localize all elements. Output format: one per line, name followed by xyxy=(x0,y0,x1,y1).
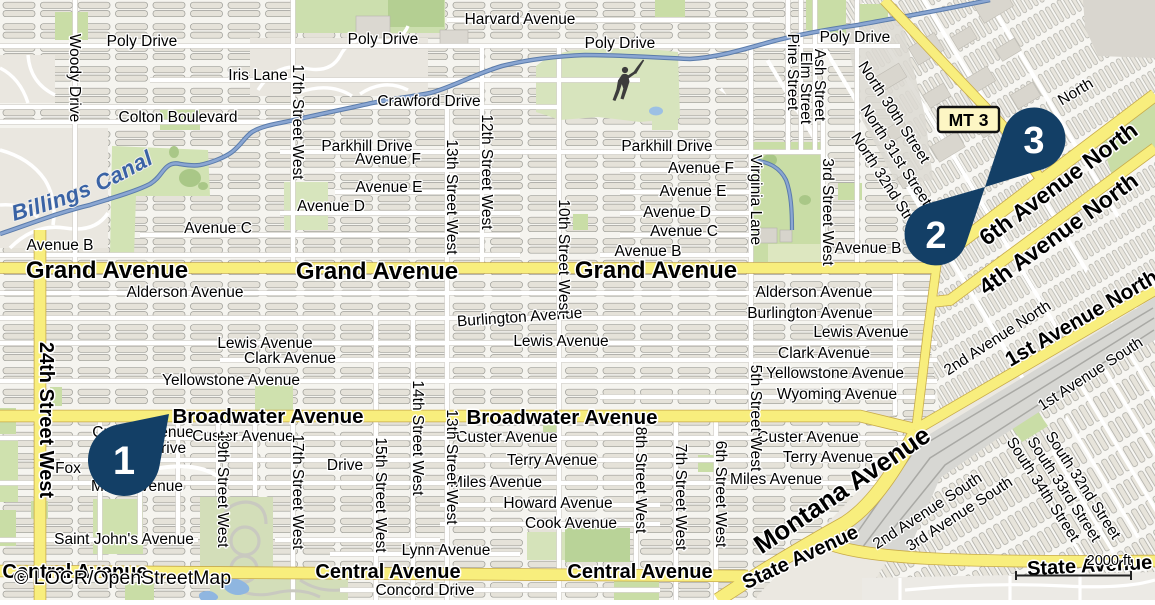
svg-text:5th Street West: 5th Street West xyxy=(747,365,764,472)
svg-text:Avenue B: Avenue B xyxy=(27,237,94,254)
svg-text:Avenue D: Avenue D xyxy=(643,204,711,221)
svg-text:Woody Drive: Woody Drive xyxy=(66,34,83,122)
svg-text:Alderson Avenue: Alderson Avenue xyxy=(127,284,244,301)
svg-text:Saint John's Avenue: Saint John's Avenue xyxy=(54,531,194,548)
svg-text:Yellowstone Avenue: Yellowstone Avenue xyxy=(162,372,300,389)
svg-text:Avenue F: Avenue F xyxy=(668,160,734,177)
svg-text:Avenue C: Avenue C xyxy=(650,223,718,240)
svg-text:10th Street West: 10th Street West xyxy=(555,199,572,315)
svg-text:Custer Avenue: Custer Avenue xyxy=(456,429,557,446)
svg-text:Central Avenue: Central Avenue xyxy=(567,561,712,583)
svg-text:24th Street West: 24th Street West xyxy=(35,342,57,499)
svg-text:Grand Avenue: Grand Avenue xyxy=(296,258,458,285)
svg-text:Clark Avenue: Clark Avenue xyxy=(778,345,870,362)
svg-text:© LOCR/OpenStreetMap: © LOCR/OpenStreetMap xyxy=(14,567,231,589)
svg-text:Parkhill Drive: Parkhill Drive xyxy=(621,138,712,155)
svg-text:Custer Avenue: Custer Avenue xyxy=(192,428,293,445)
svg-text:17th Street West: 17th Street West xyxy=(289,64,306,180)
svg-text:Wyoming Avenue: Wyoming Avenue xyxy=(777,386,897,403)
svg-text:Iris Lane: Iris Lane xyxy=(228,67,287,84)
svg-text:Virginia Lane: Virginia Lane xyxy=(747,155,764,245)
svg-text:Howard Avenue: Howard Avenue xyxy=(503,495,612,512)
svg-text:12th Street West: 12th Street West xyxy=(478,114,495,230)
svg-text:17th Street West: 17th Street West xyxy=(289,434,306,550)
svg-text:13th Street West: 13th Street West xyxy=(443,139,460,255)
svg-text:Miles Avenue: Miles Avenue xyxy=(730,471,822,488)
svg-text:2: 2 xyxy=(925,215,946,257)
svg-text:Burlington Avenue: Burlington Avenue xyxy=(747,305,873,322)
svg-text:Avenue B: Avenue B xyxy=(835,240,902,257)
svg-text:Drive: Drive xyxy=(327,457,363,474)
svg-text:Avenue E: Avenue E xyxy=(356,179,423,196)
svg-text:Avenue D: Avenue D xyxy=(297,198,365,215)
svg-text:Broadwater Avenue: Broadwater Avenue xyxy=(466,406,657,429)
svg-text:Poly Drive: Poly Drive xyxy=(348,31,419,48)
svg-text:Lewis Avenue: Lewis Avenue xyxy=(813,324,908,341)
svg-text:3: 3 xyxy=(1023,120,1044,162)
svg-text:Cook Avenue: Cook Avenue xyxy=(525,515,617,532)
svg-text:Lewis Avenue: Lewis Avenue xyxy=(513,333,608,350)
svg-text:6th Street West: 6th Street West xyxy=(712,441,729,548)
svg-text:Avenue C: Avenue C xyxy=(184,220,252,237)
svg-text:Colton Boulevard: Colton Boulevard xyxy=(119,109,238,126)
svg-text:Poly Drive: Poly Drive xyxy=(820,29,891,46)
svg-text:Avenue E: Avenue E xyxy=(660,183,727,200)
svg-text:19th Street West: 19th Street West xyxy=(214,432,231,548)
svg-text:Lynn Avenue: Lynn Avenue xyxy=(402,542,491,559)
svg-text:13th Street West: 13th Street West xyxy=(443,409,460,525)
svg-text:1: 1 xyxy=(113,439,135,483)
svg-text:Yellowstone Avenue: Yellowstone Avenue xyxy=(766,365,904,382)
svg-text:Terry Avenue: Terry Avenue xyxy=(507,452,597,469)
svg-text:Custer Avenue: Custer Avenue xyxy=(757,429,858,446)
svg-text:Clark Avenue: Clark Avenue xyxy=(244,350,336,367)
svg-text:Grand Avenue: Grand Avenue xyxy=(575,257,737,284)
svg-text:Miles Avenue: Miles Avenue xyxy=(450,474,542,491)
svg-text:Crawford Drive: Crawford Drive xyxy=(377,93,480,110)
svg-text:Concord Drive: Concord Drive xyxy=(375,582,474,599)
svg-text:Alderson Avenue: Alderson Avenue xyxy=(756,284,873,301)
svg-text:2000 ft: 2000 ft xyxy=(1087,553,1131,569)
svg-text:Fox: Fox xyxy=(55,460,81,477)
svg-text:Harvard Avenue: Harvard Avenue xyxy=(465,11,576,28)
svg-text:Broadwater Avenue: Broadwater Avenue xyxy=(172,405,363,428)
svg-text:Avenue F: Avenue F xyxy=(355,151,421,168)
svg-text:7th Street West: 7th Street West xyxy=(672,444,689,551)
svg-text:3rd Street West: 3rd Street West xyxy=(819,158,836,266)
svg-text:Ash Street: Ash Street xyxy=(811,49,828,122)
svg-text:8th Street West: 8th Street West xyxy=(632,427,649,534)
svg-text:Grand Avenue: Grand Avenue xyxy=(26,257,188,284)
svg-text:Central Avenue: Central Avenue xyxy=(315,561,460,583)
svg-text:14th Street West: 14th Street West xyxy=(409,380,426,496)
svg-text:MT 3: MT 3 xyxy=(949,110,989,130)
svg-text:Poly Drive: Poly Drive xyxy=(585,35,656,52)
svg-text:Poly Drive: Poly Drive xyxy=(107,33,178,50)
svg-text:15th Street West: 15th Street West xyxy=(372,437,389,553)
